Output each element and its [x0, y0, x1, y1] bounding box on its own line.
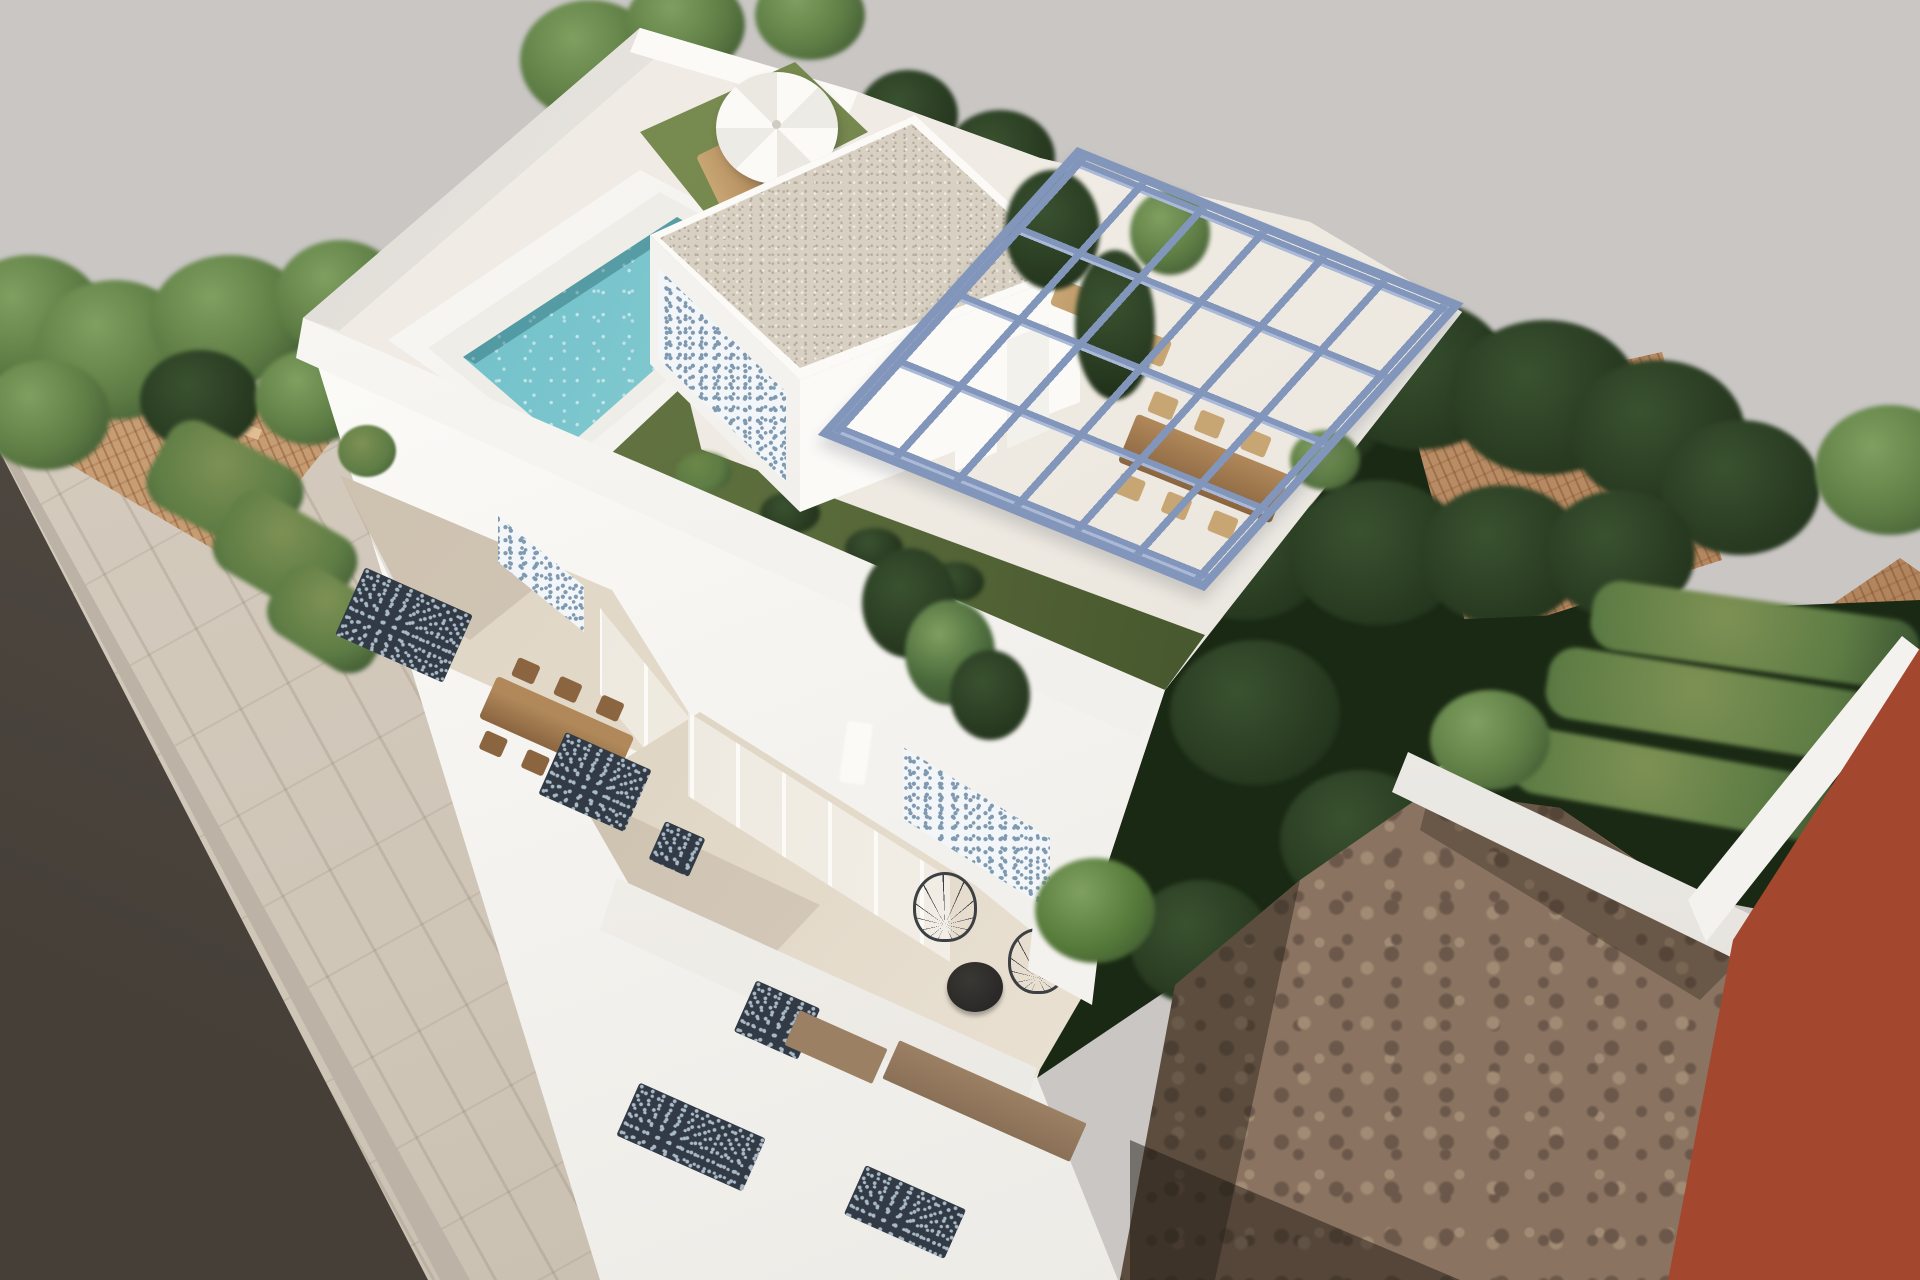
- terrace-plant: [338, 425, 396, 477]
- tree: [1815, 405, 1920, 535]
- planter-plant: [1035, 858, 1155, 963]
- dining-chair: [478, 730, 508, 758]
- dining-chair: [520, 749, 550, 777]
- architectural-render: [0, 0, 1920, 1280]
- round-table: [947, 962, 1003, 1012]
- tree: [1170, 640, 1340, 785]
- wire-chair: [913, 872, 977, 942]
- parasol-tip: [772, 120, 781, 129]
- tree: [755, 0, 865, 60]
- banana-plant: [950, 650, 1030, 740]
